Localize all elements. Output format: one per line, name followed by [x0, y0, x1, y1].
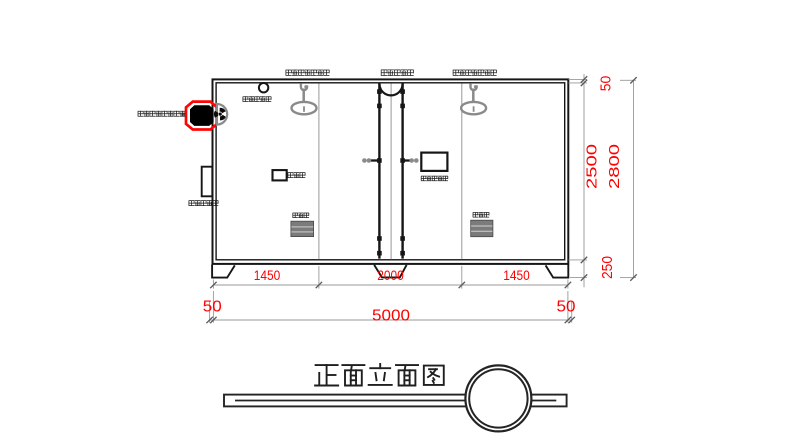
svg-text:1450: 1450	[254, 267, 281, 283]
svg-text:2800: 2800	[607, 144, 623, 189]
svg-text:2000: 2000	[377, 267, 404, 283]
svg-text:50: 50	[599, 76, 615, 92]
svg-text:50: 50	[557, 299, 576, 316]
svg-text:5000: 5000	[372, 308, 410, 325]
svg-text:1450: 1450	[503, 267, 530, 283]
svg-text:250: 250	[600, 256, 616, 279]
svg-text:2500: 2500	[584, 144, 600, 189]
svg-text:50: 50	[203, 299, 222, 316]
